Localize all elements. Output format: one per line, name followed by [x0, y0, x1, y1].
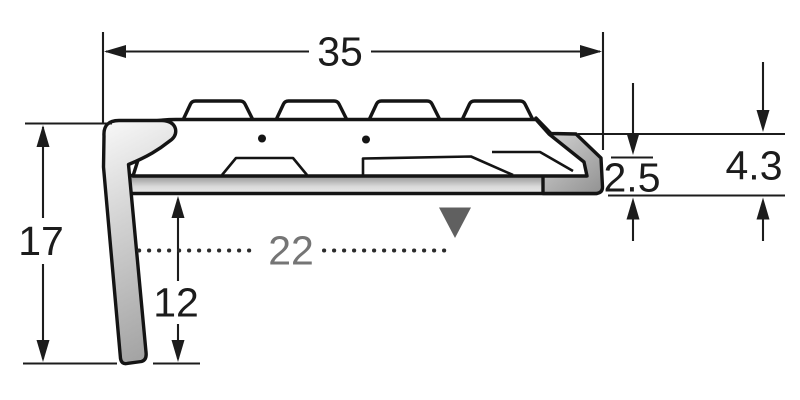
- dim-label-edge-step: 2.5: [604, 155, 661, 201]
- rib-3: [369, 101, 440, 120]
- dim-label-base-length: 22: [268, 228, 314, 274]
- technical-drawing-canvas: 35 17 12 22 2.5: [0, 0, 800, 400]
- rib-2: [276, 101, 347, 120]
- arrow-right-icon: [580, 45, 602, 58]
- dim-label-leg-height: 12: [153, 280, 199, 326]
- arrow-down-icon: [37, 340, 50, 362]
- fixing-dot-left: [258, 135, 266, 143]
- arrow-down-icon: [757, 110, 770, 132]
- position-marker-triangle-icon: [439, 208, 471, 239]
- arrow-up-icon: [627, 198, 640, 220]
- arrow-down-icon: [627, 133, 640, 155]
- rib-4: [462, 101, 533, 120]
- dim-label-top-width: 35: [317, 29, 363, 75]
- dim-edge-step: 2.5: [604, 83, 661, 241]
- arrow-down-icon: [172, 340, 185, 362]
- arrow-up-icon: [757, 198, 770, 220]
- fixing-dot-right: [362, 136, 370, 144]
- profile-cross-section-svg: 35 17 12 22 2.5: [0, 0, 800, 400]
- dim-front-height: 4.3: [578, 62, 785, 241]
- base-strip: [126, 176, 597, 194]
- arrow-up-icon: [172, 196, 185, 218]
- arrow-left-icon: [104, 45, 126, 58]
- dim-label-overall-height: 17: [18, 218, 64, 264]
- dim-base-length: 22: [139, 208, 471, 274]
- dim-label-front-height: 4.3: [726, 143, 783, 189]
- arrow-up-icon: [37, 125, 50, 147]
- tread-insert: [133, 120, 587, 177]
- rib-1: [183, 101, 253, 120]
- dim-leg-height: 12: [153, 196, 200, 364]
